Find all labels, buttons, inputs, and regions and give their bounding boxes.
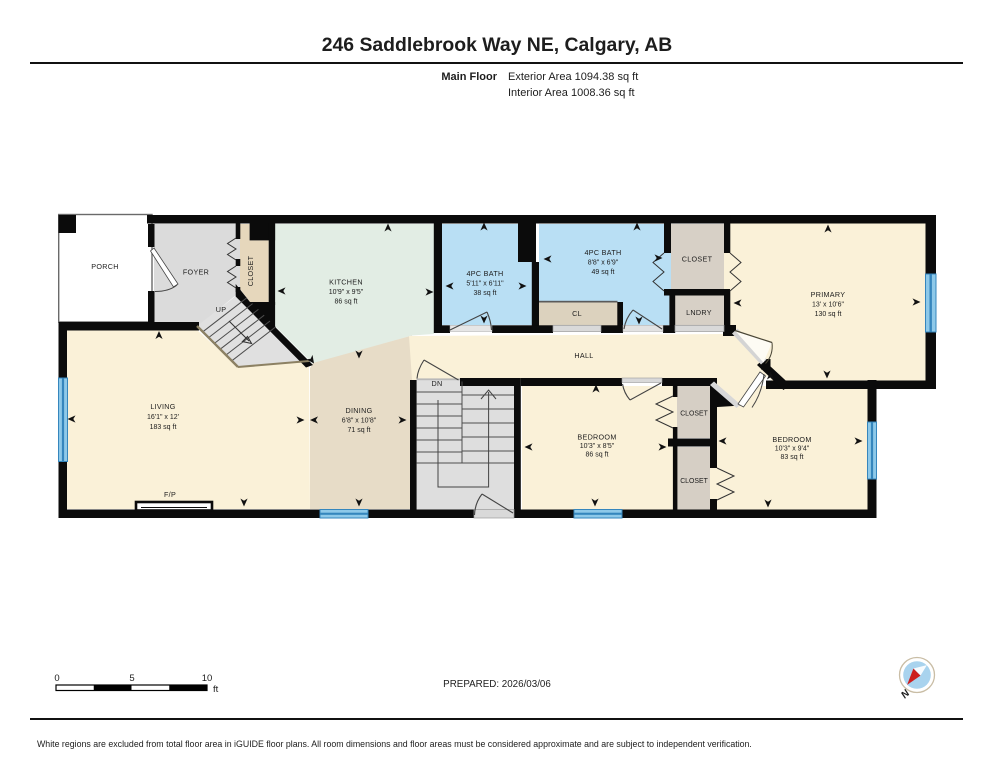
svg-text:LNDRY: LNDRY	[686, 308, 712, 317]
svg-text:10'3" x 8'5": 10'3" x 8'5"	[580, 443, 615, 450]
svg-text:Interior Area 1008.36 sq ft: Interior Area 1008.36 sq ft	[508, 87, 635, 99]
svg-text:246 Saddlebrook Way NE, Calgar: 246 Saddlebrook Way NE, Calgary, AB	[322, 34, 673, 56]
svg-text:White regions are excluded fro: White regions are excluded from total fl…	[37, 739, 752, 749]
svg-text:71 sq ft: 71 sq ft	[348, 427, 371, 434]
svg-text:FOYER: FOYER	[183, 268, 209, 277]
svg-text:DN: DN	[432, 379, 443, 388]
svg-text:38 sq ft: 38 sq ft	[474, 290, 497, 297]
svg-text:10'9" x 9'5": 10'9" x 9'5"	[329, 289, 364, 296]
svg-text:130 sq ft: 130 sq ft	[815, 311, 842, 318]
svg-text:4PC BATH: 4PC BATH	[466, 269, 503, 278]
svg-text:5'11" x 6'11": 5'11" x 6'11"	[466, 281, 504, 288]
svg-text:CLOSET: CLOSET	[682, 255, 713, 264]
svg-text:183 sq ft: 183 sq ft	[150, 424, 177, 431]
svg-text:HALL: HALL	[574, 351, 593, 360]
svg-text:5: 5	[129, 673, 134, 684]
svg-text:13' x 10'6": 13' x 10'6"	[812, 302, 845, 309]
svg-text:DINING: DINING	[346, 406, 373, 415]
svg-text:CLOSET: CLOSET	[680, 411, 708, 418]
svg-text:LIVING: LIVING	[150, 402, 175, 411]
svg-text:10: 10	[202, 673, 213, 684]
svg-text:F/P: F/P	[164, 490, 176, 499]
svg-text:ft: ft	[213, 684, 219, 695]
svg-text:8'8" x 6'9": 8'8" x 6'9"	[588, 260, 619, 267]
svg-text:49 sq ft: 49 sq ft	[592, 269, 615, 276]
svg-text:BEDROOM: BEDROOM	[577, 433, 616, 442]
svg-text:86 sq ft: 86 sq ft	[586, 452, 609, 459]
svg-text:CLOSET: CLOSET	[246, 255, 255, 286]
svg-text:PREPARED: 2026/03/06: PREPARED: 2026/03/06	[443, 679, 551, 690]
svg-text:83 sq ft: 83 sq ft	[781, 454, 804, 461]
svg-text:PORCH: PORCH	[91, 262, 118, 271]
svg-text:PRIMARY: PRIMARY	[811, 290, 846, 299]
svg-text:0: 0	[54, 673, 59, 684]
svg-text:10'3" x 9'4": 10'3" x 9'4"	[775, 446, 810, 453]
svg-text:KITCHEN: KITCHEN	[329, 278, 363, 287]
svg-text:4PC BATH: 4PC BATH	[584, 248, 621, 257]
svg-text:CLOSET: CLOSET	[680, 478, 708, 485]
svg-text:CL: CL	[572, 309, 582, 318]
svg-text:Exterior Area 1094.38 sq ft: Exterior Area 1094.38 sq ft	[508, 71, 638, 83]
svg-text:UP: UP	[216, 305, 227, 314]
svg-text:16'1" x 12': 16'1" x 12'	[147, 414, 179, 421]
svg-text:86 sq ft: 86 sq ft	[335, 299, 358, 306]
svg-text:6'8" x 10'8": 6'8" x 10'8"	[342, 418, 377, 425]
svg-text:BEDROOM: BEDROOM	[772, 435, 811, 444]
svg-text:Main Floor: Main Floor	[441, 71, 497, 83]
